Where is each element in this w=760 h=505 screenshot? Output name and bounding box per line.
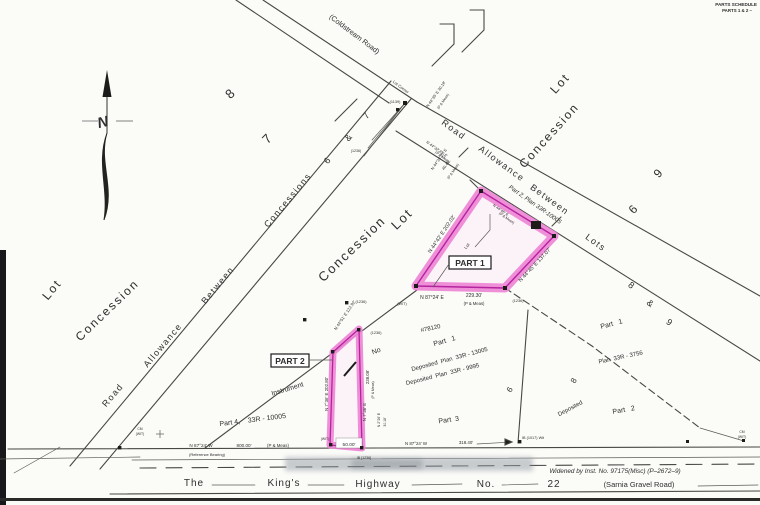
baseline-dist-318: 318.40' xyxy=(459,440,473,445)
wit-right: (WIT) xyxy=(738,435,746,439)
part1-bottom-bearing: N 87°24' E xyxy=(420,295,444,301)
wit-left: (WIT) xyxy=(136,432,144,436)
part1-label: PART 1 xyxy=(455,258,485,268)
paper-background xyxy=(0,0,760,505)
baseline-bearing-right: N 87°24' W xyxy=(405,441,428,446)
reference-bearing-note: (Reference Bearing) xyxy=(189,452,226,457)
widened-note: Widened by Inst. No. 97175(Misc) (P–2672… xyxy=(549,468,680,475)
part2-bottom-dist: 50.00' xyxy=(343,442,356,448)
part2-right-dist: 238.08' xyxy=(365,370,370,384)
cm-left: CM xyxy=(137,427,142,431)
part2-ib-note: IB [1236] xyxy=(357,456,371,460)
hw-word: The xyxy=(184,478,204,489)
part1-bottom-meas: (P & Meas) xyxy=(464,301,485,306)
survey-plan-canvas: N PARTS SCHEDULE PARTS 1 & 2 – (Coldstre… xyxy=(0,0,760,505)
reference-bearing: N 87°24' W xyxy=(189,443,213,448)
part2-tie-bearing: N 2°26' E xyxy=(377,412,381,427)
part1-bottom-dist: 229.30' xyxy=(466,293,482,299)
part2-label: PART 2 xyxy=(275,356,305,366)
baseline-meas-800: (P & Meas) xyxy=(267,443,289,448)
watermark xyxy=(285,457,533,471)
part1-bottom-wit: (WIT) xyxy=(397,302,407,306)
hw-word: King's xyxy=(268,478,301,489)
part2-1236-b: (1236) xyxy=(371,331,383,335)
parts-schedule-title: PARTS SCHEDULE xyxy=(715,2,757,7)
survey-plan-page: N PARTS SCHEDULE PARTS 1 & 2 – (Coldstre… xyxy=(0,0,760,505)
hw-word: Highway xyxy=(355,479,400,490)
part2-left-bearing: N 7°36' E 202.80' xyxy=(324,377,329,411)
part2-wit-note: (WIT) xyxy=(321,437,329,441)
hw-alias: (Sarnia Gravel Road) xyxy=(604,480,675,489)
part1-bottom-1236: (1236) xyxy=(513,299,525,303)
parts-schedule-sub: PARTS 1 & 2 – xyxy=(722,8,752,13)
part2-right-meas: (P & Meas) xyxy=(371,381,375,398)
part2-right-bearing: N 7°36' E xyxy=(362,403,367,422)
part2-tie-dist: 30.18' xyxy=(383,417,387,426)
baseline-dist-800: 800.00' xyxy=(237,443,252,448)
hw-word: 22 xyxy=(547,479,560,490)
monument-1236-int: (1236) xyxy=(351,149,361,153)
monument-1139: (1139) xyxy=(390,100,401,104)
part2-1236-a: (1236) xyxy=(356,300,368,304)
cm-right: CM xyxy=(739,430,744,434)
hw-word: No. xyxy=(477,479,496,490)
baseline-ib-1017: IB (1017) Wit xyxy=(522,436,545,440)
